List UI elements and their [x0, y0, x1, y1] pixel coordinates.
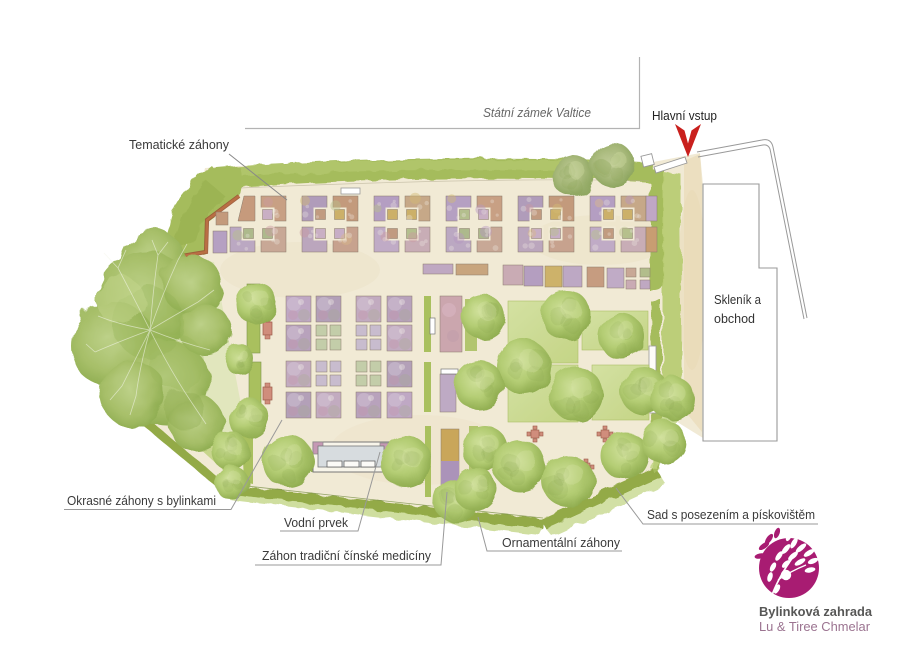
svg-text:Státní zámek Valtice: Státní zámek Valtice — [483, 106, 591, 120]
svg-text:Záhon tradiční čínské medicíny: Záhon tradiční čínské medicíny — [262, 549, 432, 563]
svg-text:Tematické záhony: Tematické záhony — [129, 138, 230, 152]
svg-text:Sad s posezením a pískovištěm: Sad s posezením a pískovištěm — [647, 508, 815, 522]
svg-text:Bylinková zahrada: Bylinková zahrada — [759, 604, 873, 619]
svg-text:Ornamentální záhony: Ornamentální záhony — [502, 536, 621, 550]
svg-text:Lu & Tiree Chmelar: Lu & Tiree Chmelar — [759, 619, 871, 634]
svg-text:obchod: obchod — [714, 312, 755, 326]
svg-text:Hlavní vstup: Hlavní vstup — [652, 109, 717, 123]
svg-text:Skleník a: Skleník a — [714, 293, 761, 307]
svg-text:Okrasné záhony s bylinkami: Okrasné záhony s bylinkami — [67, 494, 216, 508]
svg-text:Vodní prvek: Vodní prvek — [284, 516, 349, 530]
